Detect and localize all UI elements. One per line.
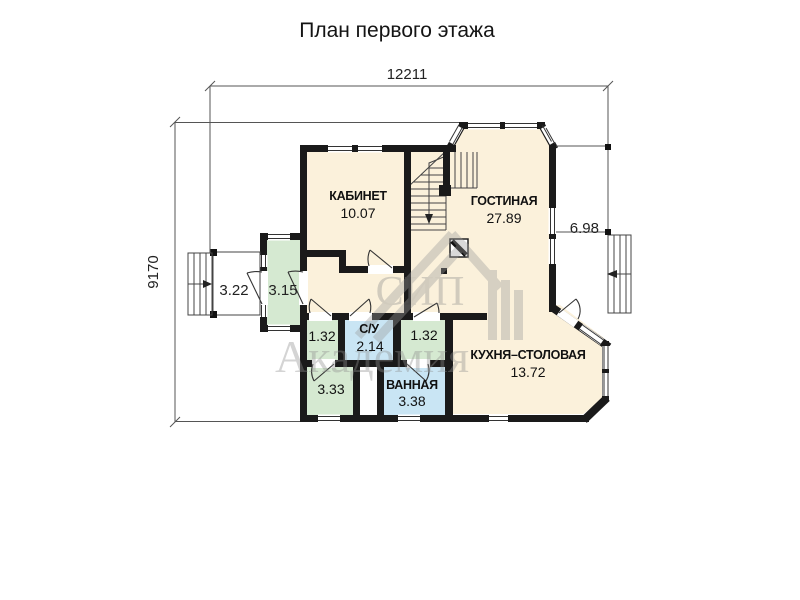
- watermark-line1: СИП: [376, 269, 465, 315]
- porch-steps-left: [188, 253, 212, 315]
- kuhnya-area: 13.72: [510, 364, 545, 380]
- su-name: С/У: [359, 322, 379, 336]
- hall-left-area: 1.32: [308, 328, 335, 344]
- kuhnya-name: КУХНЯ–СТОЛОВАЯ: [470, 348, 585, 362]
- floor-plan-drawing: СИП Академия План первого этажа 12211 91…: [0, 0, 800, 600]
- window: [260, 255, 268, 267]
- window: [268, 233, 290, 241]
- window: [603, 373, 610, 396]
- steps-right: [607, 235, 631, 313]
- window: [549, 208, 557, 234]
- tambour-area-label: 3.15: [268, 282, 297, 299]
- vannaya-name: ВАННАЯ: [386, 378, 438, 392]
- su-area: 2.14: [356, 338, 383, 354]
- porch-area-label: 3.22: [219, 282, 248, 299]
- door-porch-tambour: [247, 271, 268, 305]
- dim-marker: [605, 144, 611, 150]
- stair-newel: [439, 185, 451, 196]
- floor-plan-page: СИП Академия План первого этажа 12211 91…: [0, 0, 800, 600]
- window: [318, 415, 340, 423]
- storage-area: 3.33: [317, 381, 344, 397]
- window: [549, 239, 557, 264]
- kabinet-area: 10.07: [340, 205, 375, 221]
- window: [358, 145, 382, 153]
- window: [489, 415, 508, 423]
- kabinet-name: КАБИНЕТ: [329, 189, 387, 203]
- window: [398, 415, 420, 423]
- hall-right-area: 1.32: [410, 327, 437, 343]
- dim-height-label: 9170: [145, 255, 162, 288]
- dim-right-label: 6.98: [570, 220, 599, 237]
- gostinaya-area: 27.89: [486, 210, 521, 226]
- gostinaya-name: ГОСТИНАЯ: [471, 194, 538, 208]
- page-title: План первого этажа: [299, 19, 495, 42]
- dim-width-label: 12211: [387, 66, 428, 83]
- window: [328, 145, 352, 153]
- window: [260, 305, 268, 317]
- window: [603, 346, 610, 369]
- window: [468, 122, 500, 130]
- vannaya-area: 3.38: [398, 393, 425, 409]
- window: [505, 122, 537, 130]
- dim-marker: [605, 229, 611, 235]
